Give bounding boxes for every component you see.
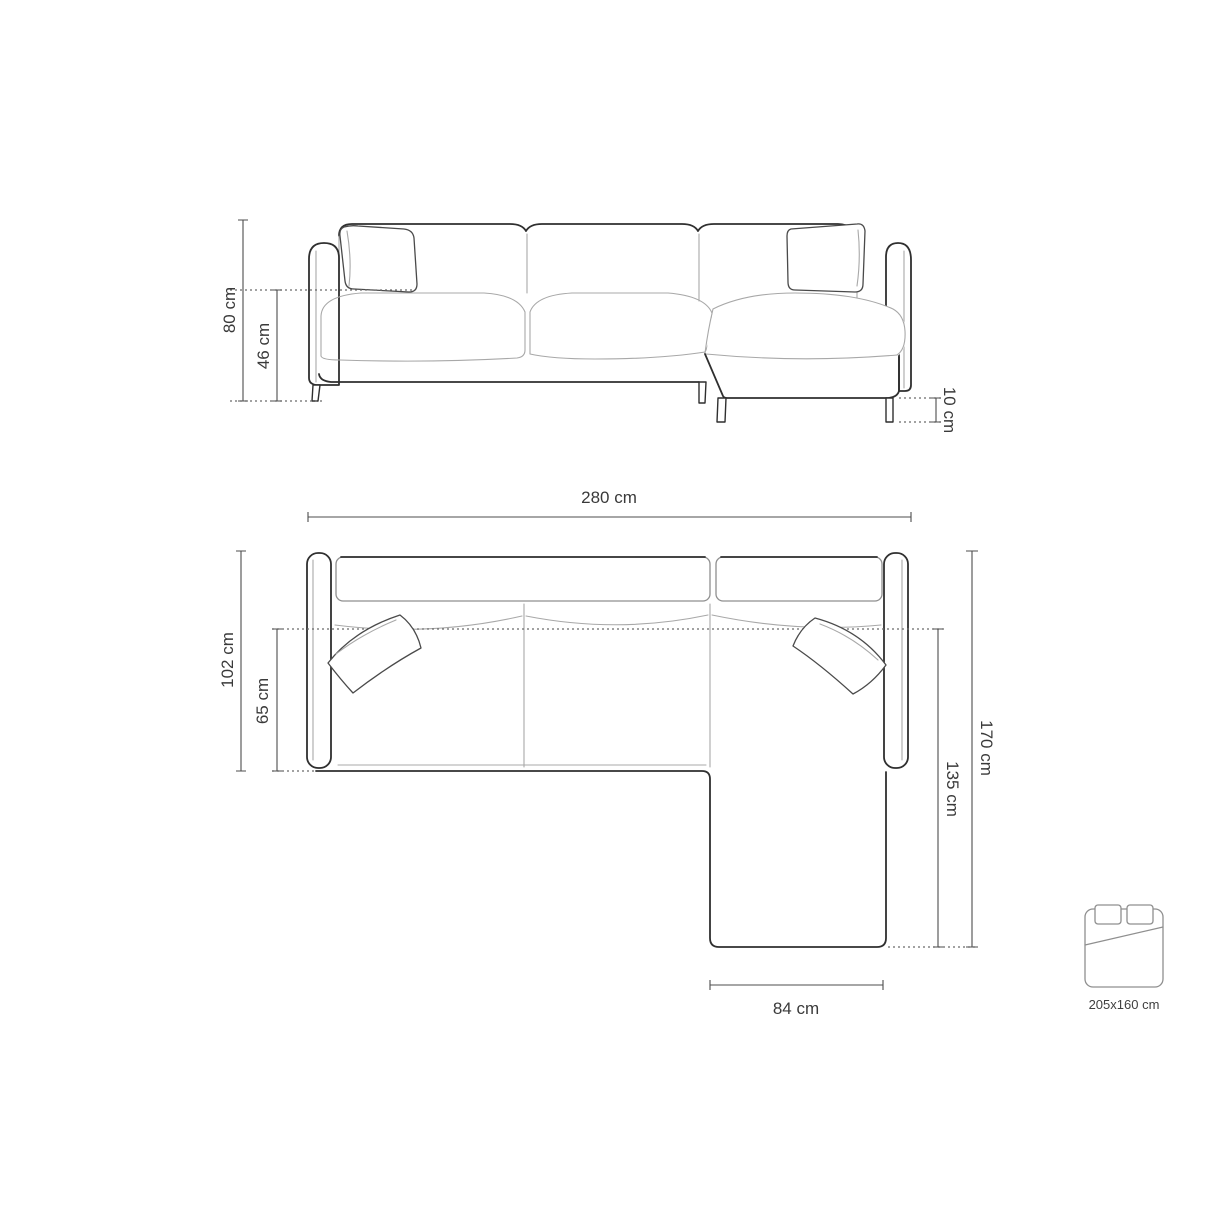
throw-pillow bbox=[328, 615, 421, 693]
plan-front-and-chaise-outline bbox=[316, 771, 886, 947]
front-view: 80 cm 46 cm 10 cm bbox=[220, 220, 959, 433]
dim-label-total-width: 280 cm bbox=[581, 488, 637, 507]
front-seat-cushions bbox=[319, 293, 712, 382]
front-chaise bbox=[699, 293, 906, 422]
front-back-cushions bbox=[339, 224, 857, 301]
dim-label-total-height: 80 cm bbox=[220, 287, 239, 333]
seat-height-dim-line bbox=[272, 290, 282, 401]
throw-pillow bbox=[787, 224, 865, 292]
seat-cushion-middle bbox=[530, 293, 712, 359]
front-throw-pillows bbox=[340, 224, 865, 292]
front-left-arm bbox=[309, 243, 339, 401]
dim-label-chaise-total-length: 170 cm bbox=[977, 720, 996, 776]
chaise-width-dim-line bbox=[710, 980, 883, 990]
seat-rear-curve bbox=[712, 615, 881, 627]
throw-pillow bbox=[340, 226, 417, 292]
seat-cushion-left bbox=[321, 293, 525, 361]
chaise-extension-dim-line bbox=[933, 629, 943, 947]
front-base-bottom bbox=[319, 374, 699, 382]
left-arm-outline bbox=[309, 243, 339, 385]
plan-left-arm bbox=[307, 553, 331, 768]
seat-rear-curve bbox=[335, 616, 522, 629]
seat-depth-dim-line bbox=[272, 629, 282, 771]
bed-pillow-icon bbox=[1095, 905, 1121, 924]
total-height-dim-line bbox=[238, 220, 248, 401]
backrest-cushion-main bbox=[336, 557, 710, 601]
sofa-dimension-diagram: 80 cm 46 cm 10 cm bbox=[0, 0, 1214, 1214]
backrest-cushion-chaise bbox=[716, 557, 882, 601]
seat-rear-curve bbox=[526, 615, 708, 625]
sofa-leg bbox=[886, 398, 893, 422]
plan-right-arm bbox=[884, 553, 908, 768]
total-width-dim-line bbox=[308, 512, 911, 522]
dim-label-total-depth: 102 cm bbox=[218, 632, 237, 688]
sofa-dimension-sheet: 80 cm 46 cm 10 cm bbox=[0, 0, 1214, 1214]
chaise-total-length-dim-line bbox=[966, 551, 978, 947]
back-cushion-top-outline bbox=[339, 224, 857, 252]
total-depth-dim-line bbox=[236, 551, 246, 771]
sleeping-area: 205x160 cm bbox=[1085, 905, 1163, 1012]
top-view: 280 cm 102 cm 65 cm 170 cm 135 cm 84 cm bbox=[218, 488, 996, 1018]
bed-pillow-icon bbox=[1127, 905, 1153, 924]
sofa-leg bbox=[717, 398, 726, 422]
dim-label-leg-height: 10 cm bbox=[940, 387, 959, 433]
sleeping-area-label: 205x160 cm bbox=[1089, 997, 1160, 1012]
plan-backrest bbox=[336, 557, 882, 601]
dim-label-chaise-width: 84 cm bbox=[773, 999, 819, 1018]
leg-height-dim-line bbox=[931, 398, 941, 422]
dim-label-seat-depth: 65 cm bbox=[253, 678, 272, 724]
dim-label-chaise-extension: 135 cm bbox=[943, 761, 962, 817]
dim-label-seat-height: 46 cm bbox=[254, 323, 273, 369]
chaise-fill bbox=[706, 293, 906, 398]
sofa-leg bbox=[699, 382, 706, 403]
sofa-leg bbox=[312, 385, 320, 401]
